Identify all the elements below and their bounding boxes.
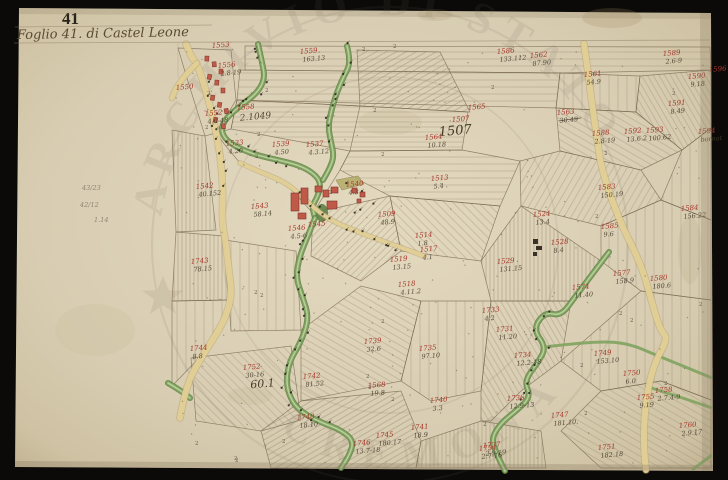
field-dot bbox=[532, 420, 533, 421]
quality-mark: 2 bbox=[265, 88, 269, 94]
field-dot bbox=[249, 155, 250, 156]
field-dot bbox=[407, 330, 408, 331]
field-dot bbox=[696, 150, 697, 151]
quality-mark: 2 bbox=[580, 363, 584, 369]
field-dot bbox=[497, 393, 498, 394]
field-dot bbox=[421, 313, 422, 314]
field-dot bbox=[493, 289, 494, 290]
building bbox=[315, 186, 322, 192]
field-dot bbox=[298, 169, 299, 170]
field-dot bbox=[527, 176, 528, 177]
field-dot bbox=[384, 186, 385, 187]
field-dot bbox=[389, 180, 390, 181]
field-dot bbox=[263, 309, 264, 310]
area-note: 58.14 bbox=[253, 209, 272, 219]
field-dot bbox=[247, 424, 248, 425]
field-dot bbox=[456, 370, 457, 371]
field-dot bbox=[527, 160, 528, 161]
farm-building bbox=[533, 252, 537, 256]
field-dot bbox=[545, 207, 546, 208]
area-note: 32.6 bbox=[366, 345, 381, 354]
parcel-number: 1565 bbox=[467, 102, 486, 112]
quality-mark: 2 bbox=[373, 108, 377, 114]
field-dot bbox=[432, 279, 433, 280]
field-dot bbox=[440, 412, 441, 413]
building bbox=[360, 192, 365, 197]
field-dot bbox=[564, 215, 565, 216]
field-dot bbox=[531, 175, 532, 176]
area-note: 3.3 bbox=[432, 404, 443, 413]
field-dot bbox=[274, 130, 275, 131]
field-dot bbox=[193, 126, 194, 127]
field-dot bbox=[622, 260, 623, 261]
area-note: 8.8 bbox=[192, 352, 203, 361]
field-dot bbox=[496, 411, 497, 412]
field-dot bbox=[192, 73, 193, 74]
field-dot bbox=[577, 221, 578, 222]
field-dot bbox=[306, 259, 307, 260]
area-note: 11.20 bbox=[498, 332, 517, 342]
field-dot bbox=[210, 300, 211, 301]
field-dot bbox=[564, 201, 565, 202]
parcel-number: 1558 bbox=[236, 102, 255, 112]
field-dot bbox=[554, 292, 555, 293]
quality-mark: 2 bbox=[381, 152, 385, 158]
field-dot bbox=[328, 116, 329, 117]
field-dot bbox=[369, 329, 370, 330]
field-dot bbox=[242, 288, 243, 289]
field-dot bbox=[560, 357, 561, 358]
parcel-hatch bbox=[225, 240, 301, 331]
field-dot bbox=[391, 386, 392, 387]
field-dot bbox=[223, 335, 224, 336]
quality-mark: 2 bbox=[257, 132, 261, 138]
quality-mark: 2 bbox=[205, 125, 209, 131]
building bbox=[291, 193, 299, 211]
field-dot bbox=[537, 457, 538, 458]
field-dot bbox=[285, 274, 286, 275]
field-dot bbox=[418, 173, 419, 174]
field-dot bbox=[191, 433, 192, 434]
field-dot bbox=[524, 109, 525, 110]
parcel-label: 174118.9 bbox=[410, 422, 429, 439]
field-dot bbox=[645, 275, 646, 276]
field-dot bbox=[181, 167, 182, 168]
field-dot bbox=[378, 298, 379, 299]
field-dot bbox=[343, 259, 344, 260]
field-dot bbox=[622, 66, 623, 67]
scanned-cadastral-map: ARCHIVIO DI STATO CREMONA 22222222222222… bbox=[0, 0, 728, 480]
field-dot bbox=[600, 329, 601, 330]
building bbox=[205, 56, 209, 61]
building bbox=[212, 62, 216, 67]
field-dot bbox=[260, 62, 261, 63]
area-note: 5.4 bbox=[433, 182, 444, 191]
quality-mark: 2 bbox=[381, 319, 385, 325]
field-dot bbox=[333, 100, 334, 101]
field-dot bbox=[517, 261, 518, 262]
parcel-label: 173932.6 bbox=[363, 336, 383, 354]
field-dot bbox=[347, 242, 348, 243]
field-dot bbox=[408, 91, 409, 92]
quality-mark: 2 bbox=[391, 397, 395, 403]
area-note: 81.52 bbox=[305, 379, 324, 389]
area-note: 11.40 bbox=[574, 290, 593, 300]
field-dot bbox=[529, 327, 530, 328]
parcel-number: 1596 bbox=[708, 64, 727, 74]
field-dot bbox=[640, 325, 641, 326]
building bbox=[215, 80, 219, 85]
area-note: 30.49 bbox=[559, 115, 578, 125]
field-dot bbox=[552, 296, 553, 297]
quality-mark: 2 bbox=[604, 151, 608, 157]
parcel-number: 1550 bbox=[175, 82, 194, 92]
field-dot bbox=[449, 69, 450, 70]
margin-note: 42/12 bbox=[79, 201, 99, 209]
field-dot bbox=[400, 373, 401, 374]
field-dot bbox=[285, 245, 286, 246]
field-dot bbox=[659, 348, 660, 349]
parcel-label: 150948.9 bbox=[377, 209, 397, 227]
area-note: 78.15 bbox=[193, 264, 212, 274]
field-dot bbox=[182, 401, 183, 402]
quality-mark: 2 bbox=[366, 374, 370, 380]
field-dot bbox=[462, 405, 463, 406]
field-dot bbox=[415, 177, 416, 178]
field-dot bbox=[221, 232, 222, 233]
field-dot bbox=[345, 211, 346, 212]
field-dot bbox=[539, 289, 540, 290]
area-note: 54.9 bbox=[586, 78, 601, 87]
field-dot bbox=[186, 51, 187, 52]
field-dot bbox=[416, 126, 417, 127]
field-dot bbox=[666, 450, 667, 451]
field-dot bbox=[524, 331, 525, 332]
parcel-number-large: 1507 bbox=[438, 122, 473, 140]
field-dot bbox=[530, 334, 531, 335]
field-dot bbox=[465, 377, 466, 378]
field-dot bbox=[308, 283, 309, 284]
field-dot bbox=[198, 180, 199, 181]
field-dot bbox=[632, 462, 633, 463]
field-dot bbox=[234, 329, 235, 330]
building bbox=[221, 88, 225, 93]
building bbox=[207, 74, 212, 80]
quality-mark: 2 bbox=[595, 214, 599, 220]
parcel-label: 15464.5-6 bbox=[287, 223, 307, 241]
area-note: 4.5-6 bbox=[289, 231, 307, 241]
field-dot bbox=[435, 302, 436, 303]
quality-mark: 2 bbox=[255, 154, 259, 160]
quality-mark: 2 bbox=[282, 439, 286, 445]
field-dot bbox=[410, 394, 411, 395]
field-dot bbox=[186, 212, 187, 213]
field-dot bbox=[253, 199, 254, 200]
field-dot bbox=[251, 92, 252, 93]
field-dot bbox=[193, 283, 194, 284]
quality-mark: 2 bbox=[535, 240, 539, 246]
field-dot bbox=[257, 187, 258, 188]
parcel-label: 156819.8 bbox=[367, 380, 387, 398]
field-dot bbox=[211, 91, 212, 92]
field-dot bbox=[455, 87, 456, 88]
building bbox=[301, 188, 308, 204]
field-dot bbox=[195, 424, 196, 425]
area-note: 19.8 bbox=[370, 389, 385, 398]
field-dot bbox=[560, 58, 561, 59]
field-dot bbox=[243, 164, 244, 165]
field-dot bbox=[535, 437, 536, 438]
parcel-label: 15334.20 bbox=[225, 138, 245, 156]
field-dot bbox=[234, 237, 235, 238]
field-dot bbox=[450, 208, 451, 209]
field-dot bbox=[322, 278, 323, 279]
parcel-label: 1596 bbox=[708, 64, 727, 74]
field-dot bbox=[564, 352, 565, 353]
field-dot bbox=[667, 373, 668, 374]
field-dot bbox=[419, 127, 420, 128]
field-dot bbox=[527, 171, 528, 172]
building bbox=[224, 108, 229, 114]
area-note: 4.20 bbox=[227, 147, 243, 156]
field-dot bbox=[232, 49, 233, 50]
field-dot bbox=[245, 314, 246, 315]
quality-mark: 2 bbox=[483, 422, 487, 428]
field-dot bbox=[588, 432, 589, 433]
parcel-label: 152413.4 bbox=[532, 209, 551, 226]
parcel-label: 15892.6-9 bbox=[662, 48, 682, 66]
quality-mark: 2 bbox=[672, 91, 676, 97]
field-dot bbox=[610, 256, 611, 257]
field-dot bbox=[265, 445, 266, 446]
quality-mark: 2 bbox=[329, 190, 333, 196]
field-dot bbox=[675, 128, 676, 129]
field-dot bbox=[624, 412, 625, 413]
field-dot bbox=[295, 90, 296, 91]
field-dot bbox=[678, 167, 679, 168]
field-dot bbox=[340, 321, 341, 322]
field-dot bbox=[389, 78, 390, 79]
field-dot bbox=[320, 193, 321, 194]
quality-mark: 2 bbox=[362, 47, 366, 53]
parcel-label: 1565 bbox=[467, 102, 486, 112]
margin-note: 1.14 bbox=[94, 216, 108, 224]
field-dot bbox=[411, 124, 412, 125]
field-dot bbox=[661, 419, 662, 420]
field-dot bbox=[313, 312, 314, 313]
parcel-number: 1545 bbox=[307, 219, 326, 229]
parcel-label: 17559.19 bbox=[636, 392, 656, 410]
field-dot bbox=[684, 368, 685, 369]
field-dot bbox=[219, 299, 220, 300]
field-dot bbox=[472, 356, 473, 357]
map-canvas: ARCHIVIO DI STATO CREMONA 22222222222222… bbox=[0, 0, 728, 480]
quality-mark: 2 bbox=[619, 311, 623, 317]
field-dot bbox=[182, 413, 183, 414]
area-note: 6.0 bbox=[625, 377, 636, 386]
field-dot bbox=[195, 340, 196, 341]
parcel-label: 1550 bbox=[175, 82, 194, 92]
building bbox=[217, 102, 222, 108]
field-dot bbox=[242, 249, 243, 250]
field-dot bbox=[576, 51, 577, 52]
field-dot bbox=[541, 413, 542, 414]
area-note: 9.19 bbox=[639, 401, 654, 410]
field-dot bbox=[673, 88, 674, 89]
field-dot bbox=[575, 247, 576, 248]
field-dot bbox=[587, 302, 588, 303]
field-dot bbox=[532, 187, 533, 188]
field-dot bbox=[243, 286, 244, 287]
area-note: 158.9 bbox=[615, 276, 634, 286]
field-dot bbox=[292, 114, 293, 115]
field-dot bbox=[197, 138, 198, 139]
area-note: 97.10 bbox=[421, 351, 440, 361]
field-dot bbox=[594, 374, 595, 375]
field-dot bbox=[259, 165, 260, 166]
quality-mark: 2 bbox=[254, 290, 258, 296]
sheet-title: Foglio 41. di Castel Leone bbox=[16, 25, 189, 43]
field-dot bbox=[433, 100, 434, 101]
field-dot bbox=[202, 366, 203, 367]
field-dot bbox=[540, 384, 541, 385]
field-dot bbox=[392, 366, 393, 367]
field-dot bbox=[345, 283, 346, 284]
field-dot bbox=[366, 217, 367, 218]
field-dot bbox=[349, 429, 350, 430]
area-note: 13.4 bbox=[535, 218, 550, 227]
field-dot bbox=[180, 145, 181, 146]
field-dot bbox=[698, 268, 699, 269]
area-note: 13.15 bbox=[392, 262, 411, 272]
field-dot bbox=[389, 341, 390, 342]
field-dot bbox=[575, 64, 576, 65]
area-note: 48.9 bbox=[379, 218, 395, 227]
field-dot bbox=[515, 212, 516, 213]
field-dot bbox=[276, 182, 277, 183]
field-dot bbox=[444, 102, 445, 103]
field-dot bbox=[501, 234, 502, 235]
area-note: 4.3 bbox=[347, 188, 359, 197]
field-dot bbox=[406, 71, 407, 72]
field-dot bbox=[634, 275, 635, 276]
field-dot bbox=[470, 403, 471, 404]
field-dot bbox=[357, 135, 358, 136]
field-dot bbox=[370, 307, 371, 308]
area-note: 4.2 bbox=[483, 314, 495, 323]
field-dot bbox=[684, 127, 685, 128]
field-dot bbox=[236, 134, 237, 135]
field-dot bbox=[430, 363, 431, 364]
area-note-large: 60.1 bbox=[250, 376, 276, 391]
area-note: 2.6-9 bbox=[664, 56, 682, 66]
field-dot bbox=[201, 59, 202, 60]
field-dot bbox=[392, 354, 393, 355]
field-dot bbox=[450, 120, 451, 121]
field-dot bbox=[401, 206, 402, 207]
area-note: 8.49 bbox=[670, 107, 685, 116]
field-dot bbox=[261, 366, 262, 367]
field-dot bbox=[265, 187, 266, 188]
quality-mark: 2 bbox=[393, 44, 397, 50]
field-dot bbox=[577, 423, 578, 424]
field-dot bbox=[292, 76, 293, 77]
quality-mark: 2 bbox=[491, 85, 495, 91]
field-dot bbox=[496, 276, 497, 277]
quality-mark: 2 bbox=[584, 411, 588, 417]
field-dot bbox=[439, 84, 440, 85]
field-dot bbox=[677, 173, 678, 174]
quality-mark: 2 bbox=[630, 318, 634, 324]
field-dot bbox=[590, 156, 591, 157]
building bbox=[327, 201, 337, 209]
area-note: 8.4 bbox=[553, 246, 564, 255]
field-dot bbox=[319, 52, 320, 53]
field-dot bbox=[372, 322, 373, 323]
field-dot bbox=[470, 307, 471, 308]
field-dot bbox=[698, 178, 699, 179]
field-dot bbox=[464, 265, 465, 266]
quality-mark: 2 bbox=[207, 91, 211, 97]
field-dot bbox=[333, 115, 334, 116]
field-dot bbox=[467, 62, 468, 63]
area-note: 4.50 bbox=[273, 148, 289, 157]
field-dot bbox=[669, 435, 670, 436]
field-dot bbox=[447, 92, 448, 93]
area-note: 18.10 bbox=[299, 420, 318, 430]
farm-building bbox=[536, 246, 542, 250]
margin-note: 43/23 bbox=[81, 184, 101, 192]
field-dot bbox=[207, 297, 208, 298]
field-dot bbox=[306, 348, 307, 349]
field-dot bbox=[619, 431, 620, 432]
area-note: 4.1 bbox=[421, 253, 433, 262]
field-dot bbox=[447, 455, 448, 456]
field-dot bbox=[512, 382, 513, 383]
area-note: 10.18 bbox=[427, 140, 446, 150]
field-dot bbox=[468, 333, 469, 334]
field-dot bbox=[446, 186, 447, 187]
field-dot bbox=[259, 253, 260, 254]
parcel-label: 15918.49 bbox=[667, 98, 686, 115]
building bbox=[298, 213, 306, 219]
building bbox=[210, 95, 215, 101]
field-dot bbox=[412, 304, 413, 305]
field-dot bbox=[241, 403, 242, 404]
parcel-label: 1545 bbox=[307, 219, 326, 229]
area-note: 87.90 bbox=[532, 58, 551, 68]
field-dot bbox=[337, 268, 338, 269]
field-dot bbox=[176, 97, 177, 98]
field-dot bbox=[344, 139, 345, 140]
field-dot bbox=[265, 179, 266, 180]
field-dot bbox=[482, 53, 483, 54]
area-note: 18.9 bbox=[413, 431, 428, 440]
field-dot bbox=[525, 334, 526, 335]
field-dot bbox=[374, 257, 375, 258]
field-dot bbox=[449, 150, 450, 151]
quality-mark: 2 bbox=[260, 293, 264, 299]
quality-mark: 2 bbox=[195, 441, 199, 447]
area-note: 9.6 bbox=[603, 230, 614, 239]
field-dot bbox=[437, 73, 438, 74]
field-dot bbox=[463, 260, 464, 261]
parcel-label: 15394.50 bbox=[271, 139, 291, 157]
parcel-label: 156154.9 bbox=[583, 69, 602, 86]
field-dot bbox=[277, 360, 278, 361]
building bbox=[357, 199, 361, 203]
area-note: 180.6 bbox=[652, 281, 671, 291]
